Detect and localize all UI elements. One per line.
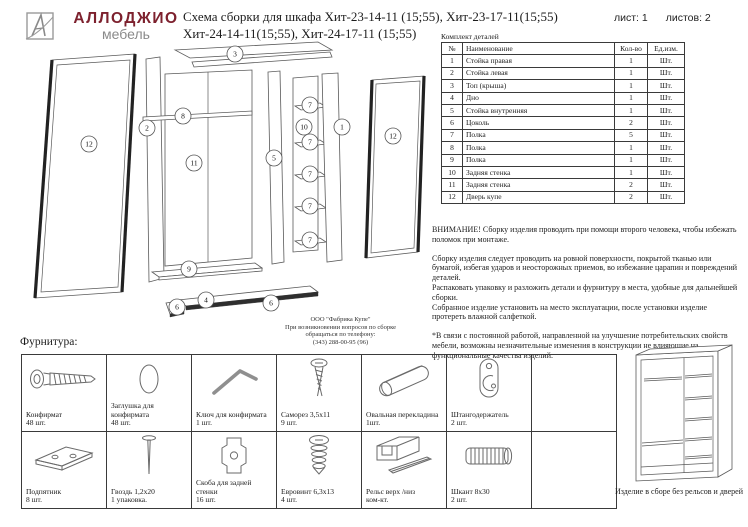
table-row: 5Стойка внутренняя1Шт. [442,104,685,116]
foot-pad-icon [28,434,100,478]
hardware-item-eurovint: Евровинт 6,3х134 шт. [277,432,362,509]
hardware-item-qty: 1 шт. [196,419,274,428]
col-number: № [442,43,463,55]
sheet-info: лист: 1 листов: 2 [614,12,744,24]
hardware-item-dowel: Шкант 8х302 шт. [447,432,532,509]
hex-key-icon [202,357,266,401]
svg-text:7: 7 [308,138,312,147]
sheet-number: лист: 1 [614,12,648,24]
screw-icon [306,357,332,401]
hardware-item-confirmat: Конфирмат48 шт. [22,355,107,432]
hardware-item-hexkey: Ключ для конфирмата1 шт. [192,355,277,432]
table-row: 10Задняя стенка1Шт. [442,166,685,178]
svg-text:5: 5 [272,154,276,163]
hardware-item-plug: Заглушка для конфирмата48 шт. [107,355,192,432]
hardware-item-nail: Гвоздь 1,2х201 упаковка. [107,432,192,509]
col-qty: Кол-во [615,43,648,55]
callout-right-side: 1 [334,119,350,135]
rail-profile-icon [369,432,439,480]
hardware-item-oval-rail: Овальная перекладина1шт. [362,355,447,432]
svg-text:11: 11 [190,159,197,168]
table-row: 7Полка5Шт. [442,129,685,141]
hardware-item-rod-holder: Штангодержатель2 шт. [447,355,532,432]
callout-shelf-5: 7 [302,232,318,248]
hardware-item-bracket: Скоба для задней стенки16 шт. [192,432,277,509]
table-row: 11Задняя стенка2Шт. [442,179,685,191]
svg-text:9: 9 [187,265,191,274]
svg-text:10: 10 [300,123,308,132]
callout-shelf-1: 7 [302,97,318,113]
callout-inner-upright: 5 [266,150,282,166]
table-row: 2Стойка левая1Шт. [442,67,685,79]
svg-text:7: 7 [308,101,312,110]
hardware-item-qty: 1 упаковка. [111,496,189,505]
rod-holder-icon [471,356,507,402]
hardware-item-qty: 2 шт. [451,419,529,428]
svg-text:12: 12 [389,132,397,141]
hardware-item-qty: ком-кт. [366,496,444,505]
table-row: 12Дверь купе2Шт. [442,191,685,203]
svg-text:7: 7 [308,170,312,179]
hardware-item-qty: 16 шт. [196,496,274,505]
parts-table-body: 1Стойка правая1Шт.2Стойка левая1Шт.3Топ … [442,55,685,204]
hardware-item-qty: 48 шт. [111,419,189,428]
callout-wide-shelf: 9 [181,261,197,277]
callout-plinth-right: 6 [263,295,279,311]
parts-table-caption: Комплект деталей [441,32,499,41]
hardware-grid: Конфирмат48 шт. Заглушка для конфирмата4… [21,354,617,509]
assembly-diagram: 3 12 2 8 11 9 5 10 7 7 7 7 7 1 12 4 6 6 [10,26,434,324]
table-row: 4Дно1Шт. [442,92,685,104]
callout-left-side: 2 [139,120,155,136]
svg-text:1: 1 [340,123,344,132]
back-panel-large [165,70,252,266]
assembly-sheet: АЛЛОДЖИО мебель Схема сборки для шкафа Х… [0,0,748,527]
svg-text:7: 7 [308,202,312,211]
sheets-total: листов: 2 [666,12,711,24]
confirmat-cap-icon [129,357,169,401]
callout-rod: 8 [175,108,191,124]
hardware-section-title: Фурнитура: [20,336,78,348]
svg-text:4: 4 [204,296,208,305]
right-side-panel [322,73,342,262]
assembled-wardrobe-drawing [628,343,748,486]
svg-text:2: 2 [145,124,149,133]
brand-name: АЛЛОДЖИО [60,11,192,27]
hardware-item-qty: 8 шт. [26,496,104,505]
svg-text:6: 6 [175,303,179,312]
hardware-item-name: Заглушка для конфирмата [111,402,189,419]
table-row: 3Топ (крыша)1Шт. [442,80,685,92]
callout-plinth-left: 6 [169,299,185,315]
hardware-item-qty: 4 шт. [281,496,359,505]
svg-text:7: 7 [308,236,312,245]
callout-right-door: 12 [385,128,401,144]
left-side-panel [146,57,164,282]
hardware-item-screw: Саморез 3,5х119 шт. [277,355,362,432]
table-row: 8Полка1Шт. [442,142,685,154]
col-name: Наименование [463,43,615,55]
table-row: 1Стойка правая1Шт. [442,55,685,67]
table-row: 6Цоколь2Шт. [442,117,685,129]
svg-text:12: 12 [85,140,93,149]
callout-shelf-2: 7 [302,134,318,150]
phone-number: (343) 288-00-95 (96) [258,339,423,347]
assembled-wardrobe-caption: Изделие в сборе без рельсов и дверей [610,487,748,496]
page-title-line1: Схема сборки для шкафа Хит-23-14-11 (15;… [183,9,573,26]
svg-text:3: 3 [233,50,237,59]
warning-text: ВНИМАНИЕ! Сборку изделия проводить при п… [432,225,742,245]
callout-shelf-4: 7 [302,198,318,214]
callout-back-large: 11 [186,155,202,171]
hardware-item-qty: 9 шт. [281,419,359,428]
hardware-cell-empty-2 [532,432,617,509]
hardware-item-rail: Рельс верх /низком-кт. [362,432,447,509]
callout-bottom-panel: 4 [198,292,214,308]
table-header-row: № Наименование Кол-во Ед.изм. [442,43,685,55]
right-door-panel [366,76,424,258]
callout-back-narrow: 10 [296,119,312,135]
callout-shelf-3: 7 [302,166,318,182]
hardware-item-qty: 48 шт. [26,419,104,428]
euro-screw-icon [305,433,333,479]
oval-crossbar-icon [369,355,439,403]
hardware-item-qty: 1шт. [366,419,444,428]
instructions-text: Сборку изделия следует проводить на ровн… [432,254,742,323]
svg-text:8: 8 [181,112,185,121]
parts-table: № Наименование Кол-во Ед.изм. 1Стойка пр… [441,42,685,204]
confirmat-screw-icon [28,364,100,394]
callout-top-panel: 3 [227,46,243,62]
col-unit: Ед.изм. [648,43,685,55]
inner-upright-panel [268,71,284,264]
table-row: 9Полка1Шт. [442,154,685,166]
hardware-item-footpad: Подпятник8 шт. [22,432,107,509]
hardware-cell-empty-1 [532,355,617,432]
svg-text:6: 6 [269,299,273,308]
hardware-item-qty: 2 шт. [451,496,529,505]
callout-left-door: 12 [81,136,97,152]
dowel-icon [457,441,521,471]
back-wall-bracket-icon [215,433,253,479]
hardware-item-name: Скоба для задней стенки [196,479,274,496]
nail-icon [138,433,160,479]
